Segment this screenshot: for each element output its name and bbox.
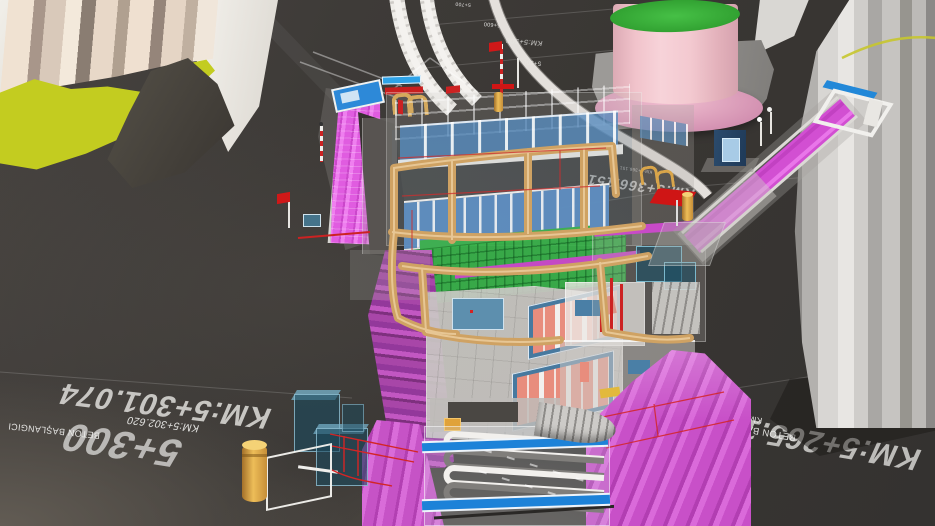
gold-cylinder-small <box>494 92 503 112</box>
red-marker-strip <box>446 85 460 93</box>
salmon-equipment <box>580 362 589 382</box>
signboard-cyan <box>382 75 421 84</box>
teal-window-small <box>303 214 321 227</box>
lamp-pole <box>760 122 762 146</box>
red-riser-pipe <box>620 284 623 338</box>
lamp-pole <box>517 58 519 88</box>
white-frame-outline <box>266 443 332 511</box>
gridline-label-far-3: 5+500 <box>523 58 542 66</box>
red-marker-strip <box>398 100 403 115</box>
flag-pole <box>288 198 290 228</box>
stair-flight <box>652 282 700 334</box>
gridline-label-far-1: 5+700 <box>455 0 471 7</box>
gold-cylinder-top <box>242 440 267 450</box>
gold-cylinder-small <box>682 194 693 221</box>
chainage-label-far: KM:5+500 <box>504 36 543 48</box>
model-viewport[interactable]: KM:5+301.074 5+300 KM:5+302.620 BETON BA… <box>0 0 935 526</box>
lamp-pole <box>770 112 772 134</box>
red-riser-pipe <box>600 282 603 332</box>
lamp-pole-ball <box>757 117 762 122</box>
gold-cylinder-large <box>242 444 267 502</box>
station-left-lower-wall <box>350 250 430 300</box>
station-left-wing <box>362 118 397 254</box>
cylinder-building <box>792 0 935 428</box>
red-riser-pipe <box>610 278 613 336</box>
red-crossbar-marker <box>492 84 514 89</box>
red-flag-marker <box>489 41 502 52</box>
gold-cylinder-top <box>682 192 693 197</box>
survey-pole-tip <box>319 122 323 126</box>
equipment-marker-dot <box>470 310 473 313</box>
kiosk-blue <box>714 130 746 166</box>
survey-pole-striped <box>320 126 323 162</box>
teal-equipment-pad <box>452 298 504 330</box>
flag-pole <box>676 200 678 226</box>
gold-pipe-bracket <box>655 169 675 189</box>
teal-glass-box <box>342 404 364 432</box>
lamp-pole-ball <box>767 107 772 112</box>
portal-glass-panel <box>340 90 360 104</box>
gold-cylinder-ring <box>242 454 267 457</box>
gridline-label-far-2: 5+600 <box>483 20 500 27</box>
kiosk-panel <box>722 138 740 162</box>
